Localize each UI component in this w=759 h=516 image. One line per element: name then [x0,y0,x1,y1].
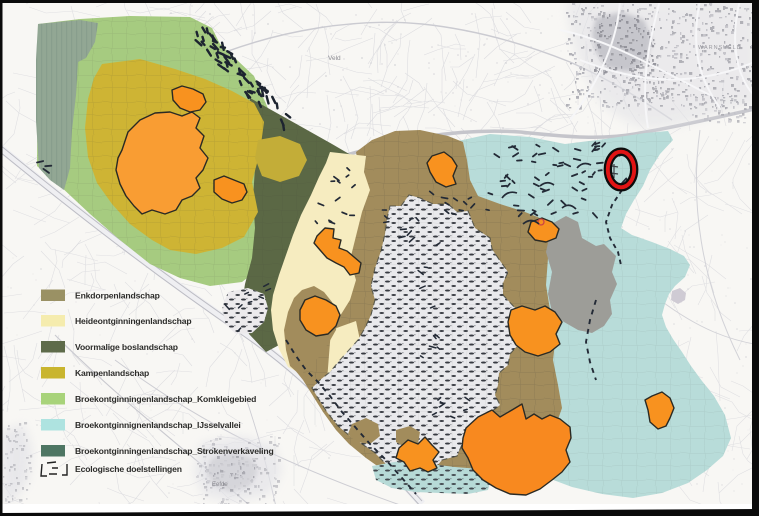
svg-text:Veld: Veld [328,55,341,62]
svg-text:Broekontginningenlandschap_Str: Broekontginningenlandschap_Strokenverkav… [75,446,274,456]
svg-text:Heideontginningenlandschap: Heideontginningenlandschap [75,316,191,326]
svg-text:Broekontginnignenlandschap_IJs: Broekontginnignenlandschap_IJsselvallei [75,420,241,430]
svg-text:WARNSVELD: WARNSVELD [698,45,742,51]
svg-text:Enkdorpenlandschap: Enkdorpenlandschap [75,291,160,301]
svg-text:Voormalige boslandschap: Voormalige boslandschap [75,342,178,352]
svg-text:Kampenlandschap: Kampenlandschap [75,368,149,378]
svg-text:Eefde: Eefde [212,482,228,488]
svg-text:Broekontginningenlandschap_Kom: Broekontginningenlandschap_Komkleigebied [75,394,256,404]
svg-text:Ecologische doelstellingen: Ecologische doelstellingen [75,464,182,474]
